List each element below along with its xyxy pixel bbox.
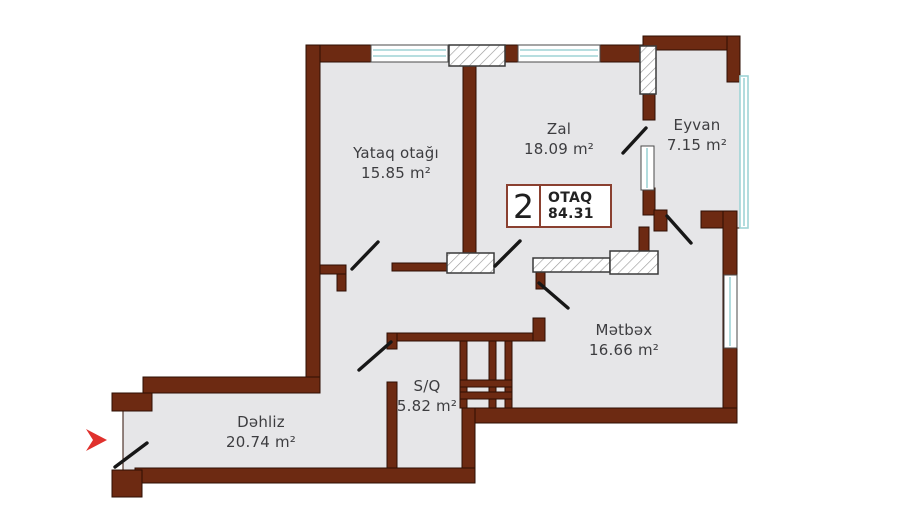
room-area: 18.09 m² bbox=[479, 139, 639, 159]
badge-label: OTAQ bbox=[548, 190, 610, 206]
rooms-count: 2 bbox=[508, 186, 541, 226]
room-label-zal: Zal 18.09 m² bbox=[479, 119, 639, 160]
window-kitchen bbox=[724, 275, 737, 348]
badge-total-area: 84.31 bbox=[548, 206, 610, 222]
room-area: 7.15 m² bbox=[627, 135, 767, 155]
window-bedroom bbox=[371, 45, 448, 62]
room-label-yataq-otagi: Yataq otağı 15.85 m² bbox=[296, 143, 496, 184]
window-zal bbox=[518, 45, 600, 62]
room-area: 16.66 m² bbox=[534, 340, 714, 360]
room-area: 20.74 m² bbox=[171, 432, 351, 452]
room-name: Yataq otağı bbox=[296, 143, 496, 163]
room-area: 15.85 m² bbox=[296, 163, 496, 183]
entrance-arrow-icon bbox=[86, 429, 107, 451]
column-top bbox=[449, 45, 505, 66]
room-label-dehliz: Dəhliz 20.74 m² bbox=[171, 412, 351, 453]
room-name: Dəhliz bbox=[171, 412, 351, 432]
counter-left bbox=[533, 258, 610, 272]
column-center bbox=[447, 253, 494, 273]
room-name: Eyvan bbox=[627, 115, 767, 135]
room-name: S/Q bbox=[377, 376, 477, 396]
unit-info-badge: 2 OTAQ 84.31 bbox=[506, 184, 612, 228]
room-label-sq: S/Q 5.82 m² bbox=[377, 376, 477, 417]
column-zal-eyvan bbox=[640, 46, 656, 94]
counter-right bbox=[610, 251, 658, 274]
floor-plan-drawing bbox=[0, 0, 915, 515]
floor-plan: Yataq otağı 15.85 m² Zal 18.09 m² Eyvan … bbox=[0, 0, 915, 515]
room-name: Zal bbox=[479, 119, 639, 139]
room-label-metbex: Mətbəx 16.66 m² bbox=[534, 320, 714, 361]
room-area: 5.82 m² bbox=[377, 396, 477, 416]
room-label-eyvan: Eyvan 7.15 m² bbox=[627, 115, 767, 156]
room-name: Mətbəx bbox=[534, 320, 714, 340]
